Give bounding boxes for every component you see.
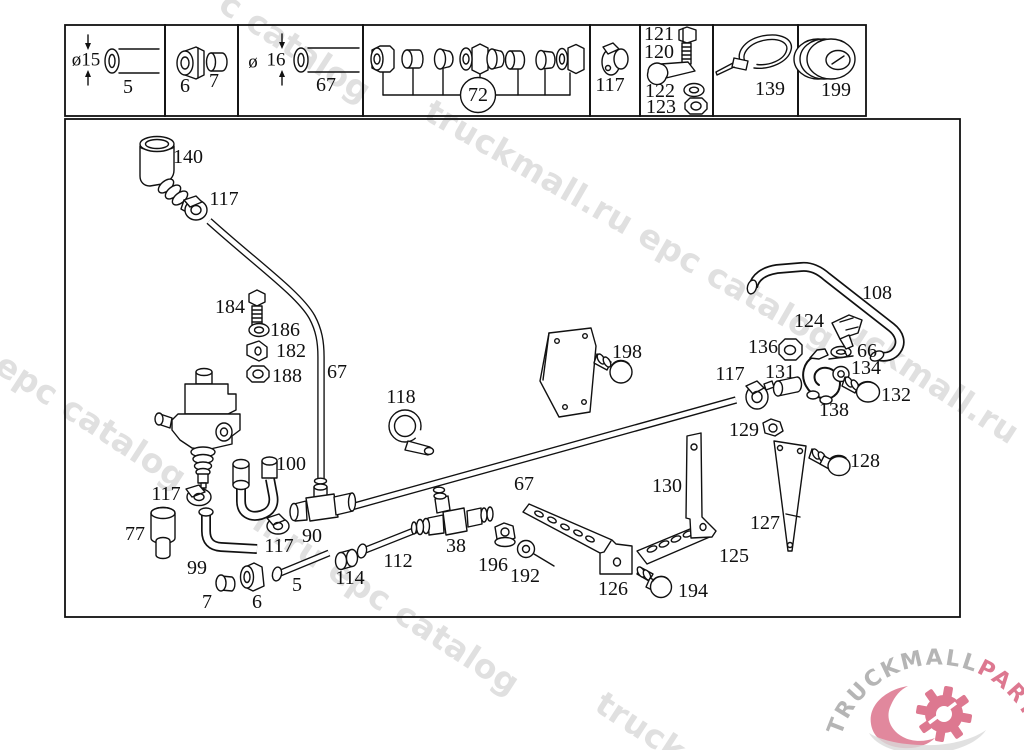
part-label-194: 194	[678, 581, 708, 601]
part-label-123: 123	[646, 97, 676, 117]
part-label-117: 117	[151, 484, 180, 504]
part-label-199: 199	[821, 80, 851, 100]
part-label-72: 72	[468, 85, 488, 105]
part-label-16: 16	[267, 51, 286, 70]
part-label-: ø	[248, 53, 258, 72]
part-label-90: 90	[302, 526, 322, 546]
part-label-67: 67	[327, 362, 347, 382]
part-label-108: 108	[862, 283, 892, 303]
part-label-198: 198	[612, 342, 642, 362]
part-label-5: 5	[123, 77, 133, 97]
part-label-136: 136	[748, 337, 778, 357]
part-label-67: 67	[316, 75, 336, 95]
part-label-188: 188	[272, 366, 302, 386]
part-label-128: 128	[850, 451, 880, 471]
part-label-192: 192	[510, 566, 540, 586]
part-label-77: 77	[125, 524, 145, 544]
part-label-138: 138	[819, 400, 849, 420]
part-label-134: 134	[851, 358, 881, 378]
part-label-117: 117	[595, 75, 624, 95]
part-label-100: 100	[276, 454, 306, 474]
part-label-117: 117	[209, 189, 238, 209]
part-label-139: 139	[755, 79, 785, 99]
part-label-6: 6	[252, 592, 262, 612]
part-label-186: 186	[270, 320, 300, 340]
part-label-15: ø15	[72, 51, 101, 70]
part-label-124: 124	[794, 311, 824, 331]
part-label-38: 38	[446, 536, 466, 556]
part-label-131: 131	[765, 362, 795, 382]
part-label-7: 7	[209, 71, 219, 91]
part-number-labels-layer: ø15567ø166772117121120122123139199140117…	[0, 0, 1024, 750]
part-label-125: 125	[719, 546, 749, 566]
part-label-184: 184	[215, 297, 245, 317]
part-label-112: 112	[383, 551, 412, 571]
part-label-99: 99	[187, 558, 207, 578]
parts-catalog-page: c catalogtruckmall.ru epc catalogl epc c…	[0, 0, 1024, 750]
part-label-117: 117	[264, 536, 293, 556]
part-label-120: 120	[644, 42, 674, 62]
part-label-7: 7	[202, 592, 212, 612]
part-label-132: 132	[881, 385, 911, 405]
part-label-118: 118	[386, 387, 415, 407]
part-label-182: 182	[276, 341, 306, 361]
part-label-114: 114	[335, 568, 364, 588]
part-label-6: 6	[180, 76, 190, 96]
part-label-127: 127	[750, 513, 780, 533]
part-label-130: 130	[652, 476, 682, 496]
part-label-196: 196	[478, 555, 508, 575]
part-label-126: 126	[598, 579, 628, 599]
part-label-67: 67	[514, 474, 534, 494]
part-label-129: 129	[729, 420, 759, 440]
part-label-140: 140	[173, 147, 203, 167]
part-label-117: 117	[715, 364, 744, 384]
part-label-5: 5	[292, 575, 302, 595]
